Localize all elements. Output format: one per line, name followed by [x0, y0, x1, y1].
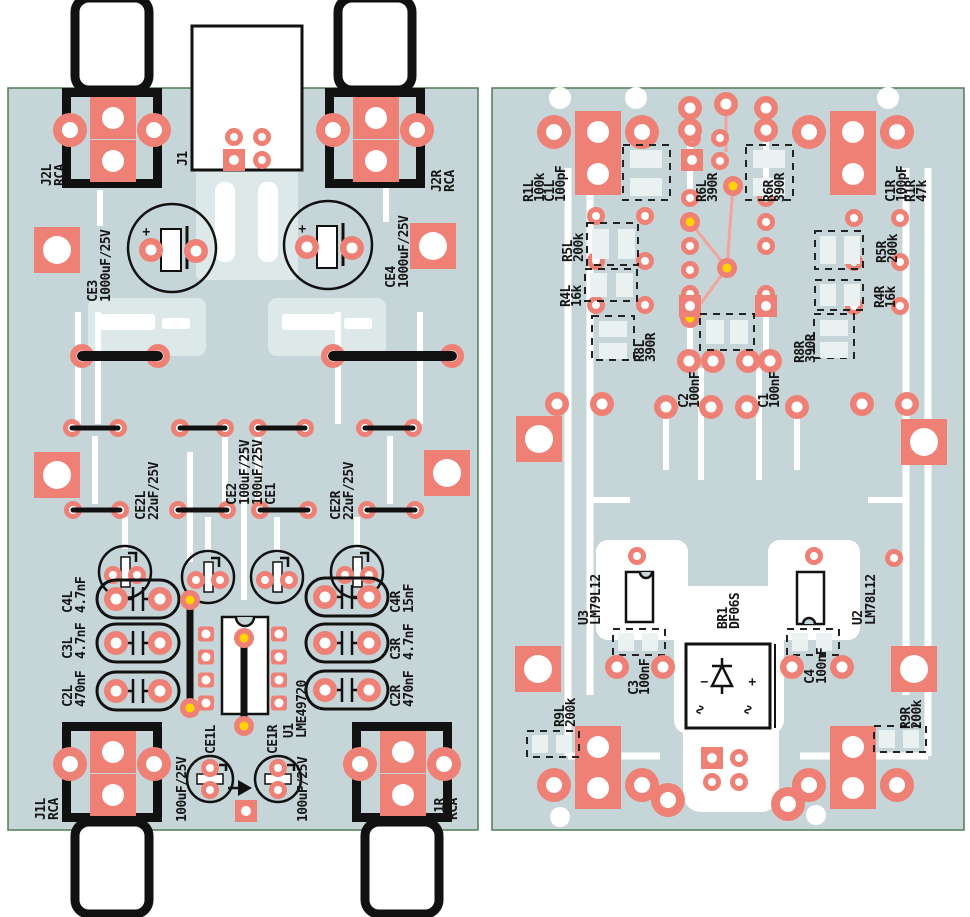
c4-value: 100nF — [815, 647, 830, 684]
u1-value: LME49720 — [295, 679, 310, 738]
c2l-value: 470nF — [74, 670, 89, 707]
r9r-value: 200k — [910, 699, 925, 729]
j2r-value: RCA — [443, 170, 458, 192]
r6l-value: 390R — [706, 172, 721, 202]
u3-value: LM79L12 — [589, 574, 604, 625]
c3-pad — [605, 655, 629, 679]
ce1-ref: CE1 — [264, 483, 279, 505]
c3r-value: 4.7nF — [402, 623, 417, 660]
bridge-rectifier-br1: − + ∿ ∿ — [686, 644, 775, 728]
r5r-value: 200k — [886, 233, 901, 263]
top-center-pad — [714, 92, 738, 116]
c3-value: 100nF — [638, 658, 653, 695]
j1r-value: RCA — [446, 798, 461, 820]
u2-value: LM78L12 — [864, 574, 879, 625]
r8r-value: 390R — [804, 333, 819, 363]
r8l-value: 390R — [644, 332, 659, 362]
r1r-value: 47k — [915, 180, 930, 202]
c2r-value: 470nF — [402, 670, 417, 707]
c3-pad — [651, 655, 675, 679]
rca-connector-j1r: J1R RCA — [343, 727, 461, 915]
ic-u3-lm79l12 — [626, 572, 653, 622]
j2l-value: RCA — [53, 164, 68, 186]
j1-ref: J1 — [176, 151, 191, 166]
r5l-value: 200k — [572, 232, 587, 262]
c2-value: 100nF — [688, 371, 703, 408]
c4-pad — [780, 655, 804, 679]
ce1r-ref: CE1R — [266, 724, 281, 754]
right-board: − + ∿ ∿ R1L 100k C1L 100pF R5L 200k R4L … — [492, 87, 964, 830]
r9l-value: 200k — [564, 697, 579, 727]
r4r-value: 16k — [884, 286, 899, 308]
connector-j1: J1 — [176, 26, 302, 171]
c4-pad — [830, 655, 854, 679]
ce2r-value: 22uF/25V — [342, 461, 357, 520]
ce4-value: 1000uF/25V — [397, 215, 412, 288]
ce1r-value: 100uF/25V — [296, 756, 311, 822]
ce2l-value: 22uF/25V — [147, 461, 162, 520]
br1-value: DF06S — [728, 592, 743, 629]
r6r-value: 390R — [773, 172, 788, 202]
ce1l-value: 100uF/25V — [175, 756, 190, 822]
ic-u2-lm78l12 — [797, 572, 824, 624]
r4l-value: 16k — [570, 285, 585, 307]
ce3-value: 1000uF/25V — [99, 229, 114, 302]
left-board: J2L RCA J2R RCA J1L RCA J1R RCA J1 — [8, 0, 478, 914]
ce1l-ref: CE1L — [204, 724, 219, 754]
pcb-layout-screenshot: + — [0, 0, 970, 917]
bridge-ac-mark: ∿ — [741, 705, 756, 715]
bridge-ac-mark: ∿ — [693, 705, 708, 715]
j1l-value: RCA — [47, 798, 62, 820]
c1l-value: 100pF — [554, 165, 569, 202]
c4r-value: 15nF — [402, 583, 417, 613]
pcb-layout-canvas: + — [0, 0, 970, 917]
c3l-value: 4.7nF — [74, 622, 89, 659]
c1-value: 100nF — [768, 371, 783, 408]
bridge-minus-mark: − — [700, 675, 708, 690]
square-pad — [235, 800, 257, 822]
bridge-plus-mark: + — [748, 675, 756, 690]
c4l-value: 4.7nF — [74, 576, 89, 613]
